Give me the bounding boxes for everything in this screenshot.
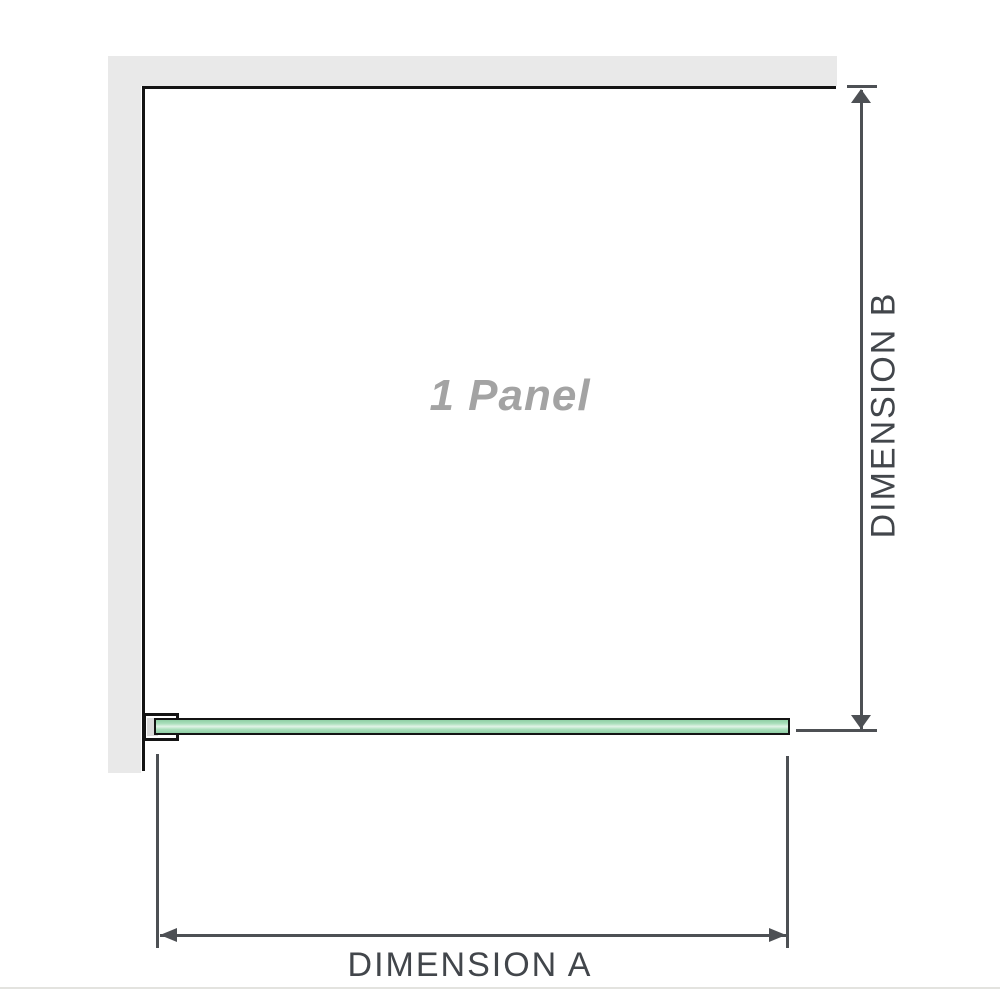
dimension-a-extension-left (156, 754, 159, 948)
dimension-b-line (860, 90, 863, 729)
enclosure-left-edge (142, 86, 145, 771)
wall-top (108, 56, 837, 86)
dimension-a-extension-right (786, 756, 789, 948)
panel-label: 1 Panel (410, 370, 610, 422)
dimension-b-tick-bottom (796, 729, 877, 732)
dimension-a-line (160, 934, 786, 937)
dimension-b-arrow-up-icon (851, 89, 871, 103)
enclosure-top-edge (142, 86, 836, 89)
dimension-b-label: DIMENSION B (865, 292, 904, 539)
dimension-a-label: DIMENSION A (320, 946, 620, 985)
dimension-b-arrow-down-icon (851, 715, 871, 729)
page-separator-line (0, 987, 1000, 989)
dimension-a-arrow-right-icon (769, 928, 786, 942)
dimension-b-tick-top (847, 85, 877, 88)
glass-panel (154, 718, 790, 735)
dimension-a-arrow-left-icon (160, 928, 177, 942)
wall-left (108, 56, 141, 773)
diagram-canvas: 1 Panel DIMENSION B DIMENSION A (0, 0, 1000, 1000)
